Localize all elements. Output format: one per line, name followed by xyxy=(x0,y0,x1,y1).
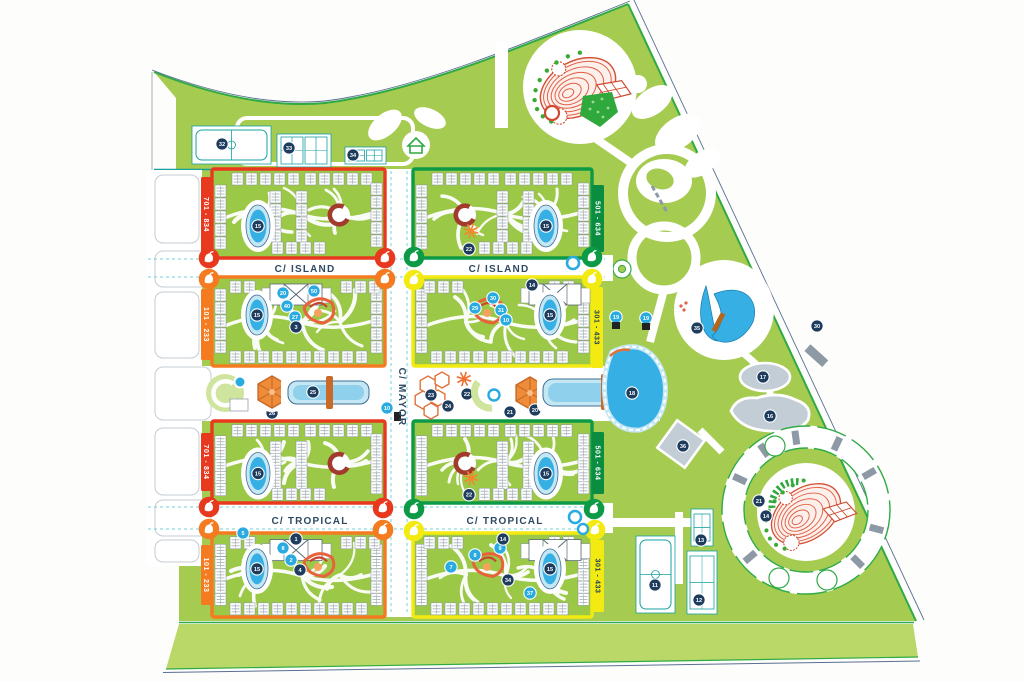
svg-text:501 - 634: 501 - 634 xyxy=(594,201,601,236)
svg-text:22: 22 xyxy=(464,392,470,398)
svg-text:23: 23 xyxy=(428,393,434,399)
svg-text:35: 35 xyxy=(694,326,700,332)
svg-text:C/ MAYOR: C/ MAYOR xyxy=(396,368,407,427)
svg-text:14: 14 xyxy=(763,514,770,520)
svg-text:13: 13 xyxy=(698,538,704,544)
svg-text:15: 15 xyxy=(543,472,549,478)
svg-text:32: 32 xyxy=(219,142,225,148)
svg-text:40: 40 xyxy=(284,304,290,310)
svg-text:7: 7 xyxy=(449,565,452,571)
svg-text:15: 15 xyxy=(543,224,549,230)
svg-text:5: 5 xyxy=(241,531,244,537)
svg-text:21: 21 xyxy=(756,499,762,505)
svg-text:22: 22 xyxy=(466,493,472,499)
svg-text:501 - 634: 501 - 634 xyxy=(594,446,601,481)
svg-text:15: 15 xyxy=(255,224,261,230)
svg-text:30: 30 xyxy=(814,324,820,330)
svg-text:12: 12 xyxy=(696,598,702,604)
svg-text:701 - 834: 701 - 834 xyxy=(202,197,209,232)
svg-text:22: 22 xyxy=(466,247,472,253)
svg-text:27: 27 xyxy=(292,315,298,321)
svg-text:16: 16 xyxy=(767,414,773,420)
svg-text:17: 17 xyxy=(760,375,766,381)
svg-text:C/ TROPICAL: C/ TROPICAL xyxy=(271,516,348,527)
svg-text:701 - 834: 701 - 834 xyxy=(202,445,209,480)
svg-text:33: 33 xyxy=(286,146,292,152)
svg-text:8: 8 xyxy=(473,553,476,559)
svg-text:15: 15 xyxy=(547,313,553,319)
svg-text:31: 31 xyxy=(498,308,504,314)
svg-text:36: 36 xyxy=(680,444,686,450)
svg-text:29: 29 xyxy=(472,306,478,312)
svg-text:20: 20 xyxy=(532,408,538,414)
svg-text:101 - 233: 101 - 233 xyxy=(202,307,209,342)
svg-text:301 - 433: 301 - 433 xyxy=(593,310,600,345)
svg-text:19: 19 xyxy=(613,315,619,321)
svg-text:3: 3 xyxy=(294,325,297,331)
svg-text:15: 15 xyxy=(547,567,553,573)
svg-text:9: 9 xyxy=(498,546,501,552)
svg-text:24: 24 xyxy=(445,404,452,410)
svg-text:15: 15 xyxy=(254,313,260,319)
svg-text:18: 18 xyxy=(629,391,635,397)
svg-text:50: 50 xyxy=(311,289,317,295)
svg-text:37: 37 xyxy=(527,591,533,597)
svg-text:C/ ISLAND: C/ ISLAND xyxy=(275,264,336,275)
svg-text:21: 21 xyxy=(507,410,513,416)
svg-text:101 - 233: 101 - 233 xyxy=(202,558,209,593)
svg-text:C/ ISLAND: C/ ISLAND xyxy=(469,264,530,275)
svg-text:34: 34 xyxy=(505,578,512,584)
svg-text:14: 14 xyxy=(529,283,536,289)
svg-text:8: 8 xyxy=(281,546,284,552)
svg-text:11: 11 xyxy=(652,583,658,589)
svg-text:14: 14 xyxy=(500,537,507,543)
svg-text:20: 20 xyxy=(280,291,286,297)
svg-text:2: 2 xyxy=(289,558,292,564)
svg-text:301 - 433: 301 - 433 xyxy=(594,559,601,594)
svg-text:34: 34 xyxy=(350,153,357,159)
svg-text:25: 25 xyxy=(310,390,316,396)
svg-text:1: 1 xyxy=(294,537,297,543)
svg-text:19: 19 xyxy=(643,316,649,322)
svg-text:15: 15 xyxy=(254,567,260,573)
svg-text:15: 15 xyxy=(255,472,261,478)
svg-text:10: 10 xyxy=(384,406,390,412)
svg-text:10: 10 xyxy=(503,318,509,324)
svg-text:30: 30 xyxy=(490,296,496,302)
svg-text:C/ TROPICAL: C/ TROPICAL xyxy=(466,516,543,527)
